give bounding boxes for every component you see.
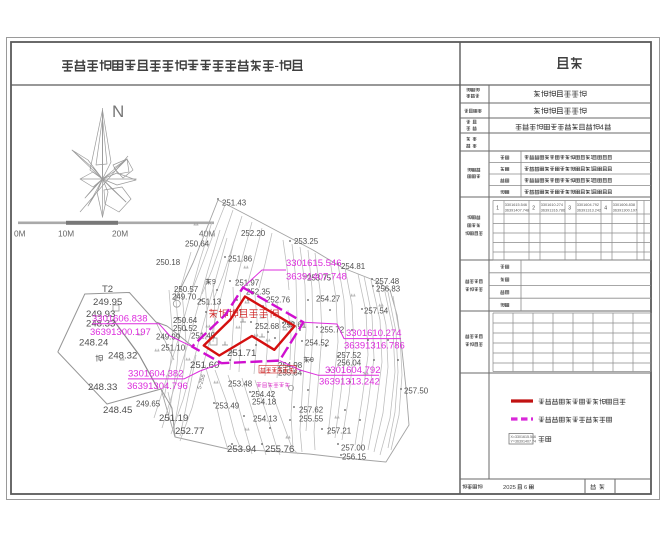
svg-text:253.25: 253.25	[294, 237, 319, 246]
svg-text:253.48: 253.48	[228, 380, 253, 389]
svg-text:10M: 10M	[58, 229, 74, 239]
svg-text:252.76: 252.76	[266, 296, 291, 305]
svg-text:255.55: 255.55	[299, 415, 324, 424]
svg-text:252.68: 252.68	[255, 322, 280, 331]
svg-text:3301604.792: 3301604.792	[325, 365, 380, 376]
svg-text:250.18: 250.18	[156, 258, 181, 267]
svg-text:257.21: 257.21	[327, 427, 351, 436]
svg-text:251.10: 251.10	[161, 344, 186, 353]
svg-text:257.62: 257.62	[299, 406, 323, 415]
svg-text:248.32: 248.32	[108, 351, 137, 362]
svg-text:3301606.838: 3301606.838	[613, 203, 635, 207]
svg-text:0M: 0M	[14, 229, 26, 239]
svg-text:3301606.838: 3301606.838	[92, 314, 147, 325]
svg-text:255.72: 255.72	[320, 326, 344, 335]
svg-text:3301615.546: 3301615.546	[505, 203, 527, 207]
svg-text:251.86: 251.86	[228, 255, 253, 264]
svg-text:36391407.748: 36391407.748	[286, 272, 347, 283]
svg-text:248.24: 248.24	[79, 338, 109, 349]
svg-text:9: 9	[212, 279, 216, 286]
svg-text:253.94: 253.94	[227, 444, 257, 455]
svg-text:20M: 20M	[112, 229, 128, 239]
svg-text:9: 9	[310, 357, 314, 364]
svg-text:36391313.242: 36391313.242	[319, 377, 380, 388]
svg-text:249.70: 249.70	[172, 293, 197, 302]
svg-text:3301610.274: 3301610.274	[541, 203, 563, 207]
svg-text:36391304.796: 36391304.796	[127, 381, 188, 392]
svg-text:256.83: 256.83	[376, 285, 401, 294]
svg-text:254.27: 254.27	[316, 295, 340, 304]
svg-text:257.00: 257.00	[341, 444, 366, 453]
svg-text:2025: 2025	[503, 485, 516, 491]
svg-text:254.13: 254.13	[253, 415, 278, 424]
svg-text:252.77: 252.77	[175, 426, 204, 437]
svg-text:3: 3	[568, 206, 571, 212]
svg-text:36391313.242: 36391313.242	[577, 209, 601, 213]
svg-text:254.18: 254.18	[252, 398, 277, 407]
svg-text:3301610.274: 3301610.274	[346, 328, 401, 339]
svg-text:248.45: 248.45	[103, 405, 132, 416]
svg-text:4: 4	[600, 123, 604, 132]
svg-text:249.65: 249.65	[136, 400, 161, 409]
svg-text:36391316.786: 36391316.786	[541, 209, 565, 213]
svg-text:3301615.546: 3301615.546	[286, 258, 341, 269]
svg-text:256.15: 256.15	[342, 453, 367, 462]
svg-text:3301604.792: 3301604.792	[577, 203, 599, 207]
svg-text:36391300.197: 36391300.197	[613, 209, 637, 213]
svg-text:T2: T2	[102, 284, 113, 295]
svg-text:254.81: 254.81	[341, 262, 365, 271]
svg-text:Y=36391407.74: Y=36391407.74	[511, 440, 536, 444]
svg-text:X=3301615.546: X=3301615.546	[511, 435, 536, 439]
svg-text:248.33: 248.33	[88, 382, 117, 393]
svg-text:257.50: 257.50	[404, 387, 429, 396]
svg-text:254.52: 254.52	[305, 339, 329, 348]
svg-text:251.97: 251.97	[235, 279, 259, 288]
svg-text:251.13: 251.13	[197, 298, 222, 307]
svg-text:253.49: 253.49	[215, 402, 240, 411]
svg-text:1: 1	[496, 206, 499, 212]
svg-text:36391316.786: 36391316.786	[344, 341, 405, 352]
svg-text:N: N	[112, 102, 124, 121]
svg-text:4: 4	[604, 206, 607, 212]
svg-text:250.64: 250.64	[185, 240, 210, 249]
svg-text:-: -	[274, 58, 279, 73]
svg-text:252.20: 252.20	[241, 229, 266, 238]
svg-text:249.95: 249.95	[93, 297, 122, 308]
svg-text:251.19: 251.19	[159, 413, 188, 424]
svg-text:257.54: 257.54	[364, 307, 389, 316]
svg-text:36391300.197: 36391300.197	[90, 327, 151, 338]
svg-text:3301604.382: 3301604.382	[128, 369, 183, 380]
svg-text:36391407.748: 36391407.748	[505, 209, 529, 213]
svg-text:255.76: 255.76	[265, 444, 294, 455]
svg-text:251.43: 251.43	[222, 199, 247, 208]
svg-text:2: 2	[532, 206, 535, 212]
svg-text:6: 6	[524, 485, 527, 491]
